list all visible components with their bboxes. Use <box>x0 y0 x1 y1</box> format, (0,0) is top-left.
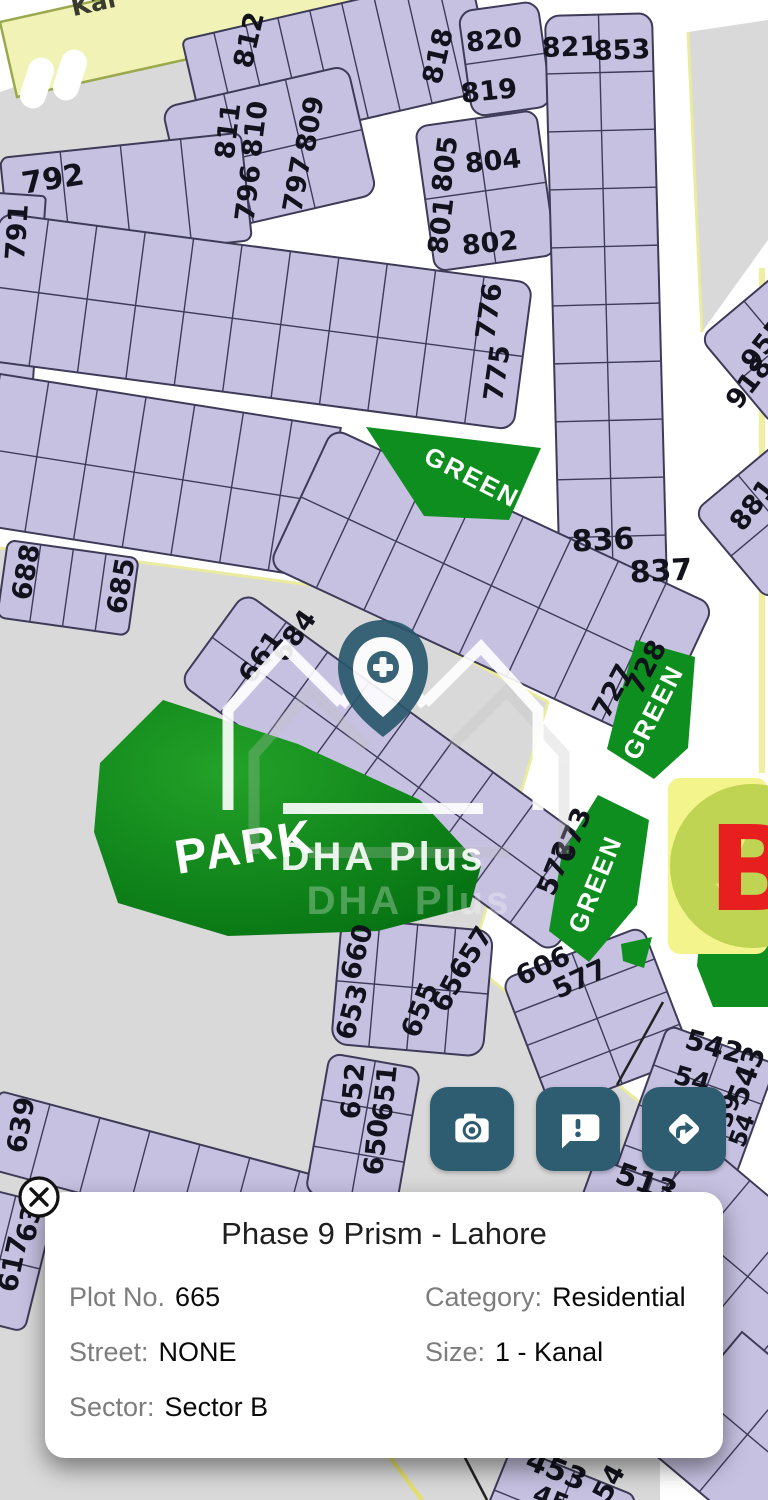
street-value: NONE <box>159 1337 237 1367</box>
close-card-button[interactable] <box>16 1174 62 1220</box>
plot-label: 853 <box>593 34 650 67</box>
plot-label: 802 <box>460 225 519 262</box>
directions-button[interactable] <box>642 1087 726 1171</box>
plot-no-field: Plot No.665 <box>69 1282 220 1313</box>
camera-icon <box>444 1101 500 1157</box>
sector-value: Sector B <box>165 1392 269 1422</box>
plot-label: 819 <box>459 73 518 110</box>
plot-label: 652 <box>335 1061 372 1120</box>
plot-map-app: { "map": { "road_label": "Kar", "park_la… <box>0 0 768 1500</box>
plot-label: 821 <box>541 31 598 64</box>
sector-label: Sector: <box>69 1392 155 1422</box>
size-label: Size: <box>425 1337 485 1367</box>
street-label: Street: <box>69 1337 149 1367</box>
camera-button[interactable] <box>430 1087 514 1171</box>
category-field: Category:Residential <box>425 1282 686 1313</box>
category-value: Residential <box>552 1282 686 1312</box>
street-field: Street:NONE <box>69 1337 237 1368</box>
plot-label: 836 <box>571 521 635 559</box>
plot-no-label: Plot No. <box>69 1282 165 1312</box>
plot-info-card: Phase 9 Prism - Lahore Plot No.665 Categ… <box>45 1192 723 1458</box>
close-icon <box>16 1174 62 1220</box>
plot-label: 820 <box>464 22 523 59</box>
sector-field: Sector:Sector B <box>69 1392 268 1423</box>
plot-block[interactable] <box>545 13 667 596</box>
plot-label: 837 <box>629 552 693 590</box>
plot-label: 650 <box>358 1117 395 1176</box>
feedback-icon <box>550 1101 606 1157</box>
size-field: Size:1 - Kanal <box>425 1337 603 1368</box>
sector-b-label: B <box>708 800 768 938</box>
svg-text:DHA Plus: DHA Plus <box>307 879 512 923</box>
size-value: 1 - Kanal <box>495 1337 603 1367</box>
plot-label: 804 <box>463 143 522 180</box>
plot-label: 791 <box>0 203 35 261</box>
sector-b-marker: B <box>668 778 768 954</box>
watermark-text: DHA Plus <box>281 835 486 879</box>
category-label: Category: <box>425 1282 542 1312</box>
feedback-button[interactable] <box>536 1087 620 1171</box>
card-title: Phase 9 Prism - Lahore <box>45 1216 723 1252</box>
plot-no-value: 665 <box>175 1282 220 1312</box>
plot-label: 651 <box>367 1063 404 1122</box>
directions-icon <box>656 1101 712 1157</box>
